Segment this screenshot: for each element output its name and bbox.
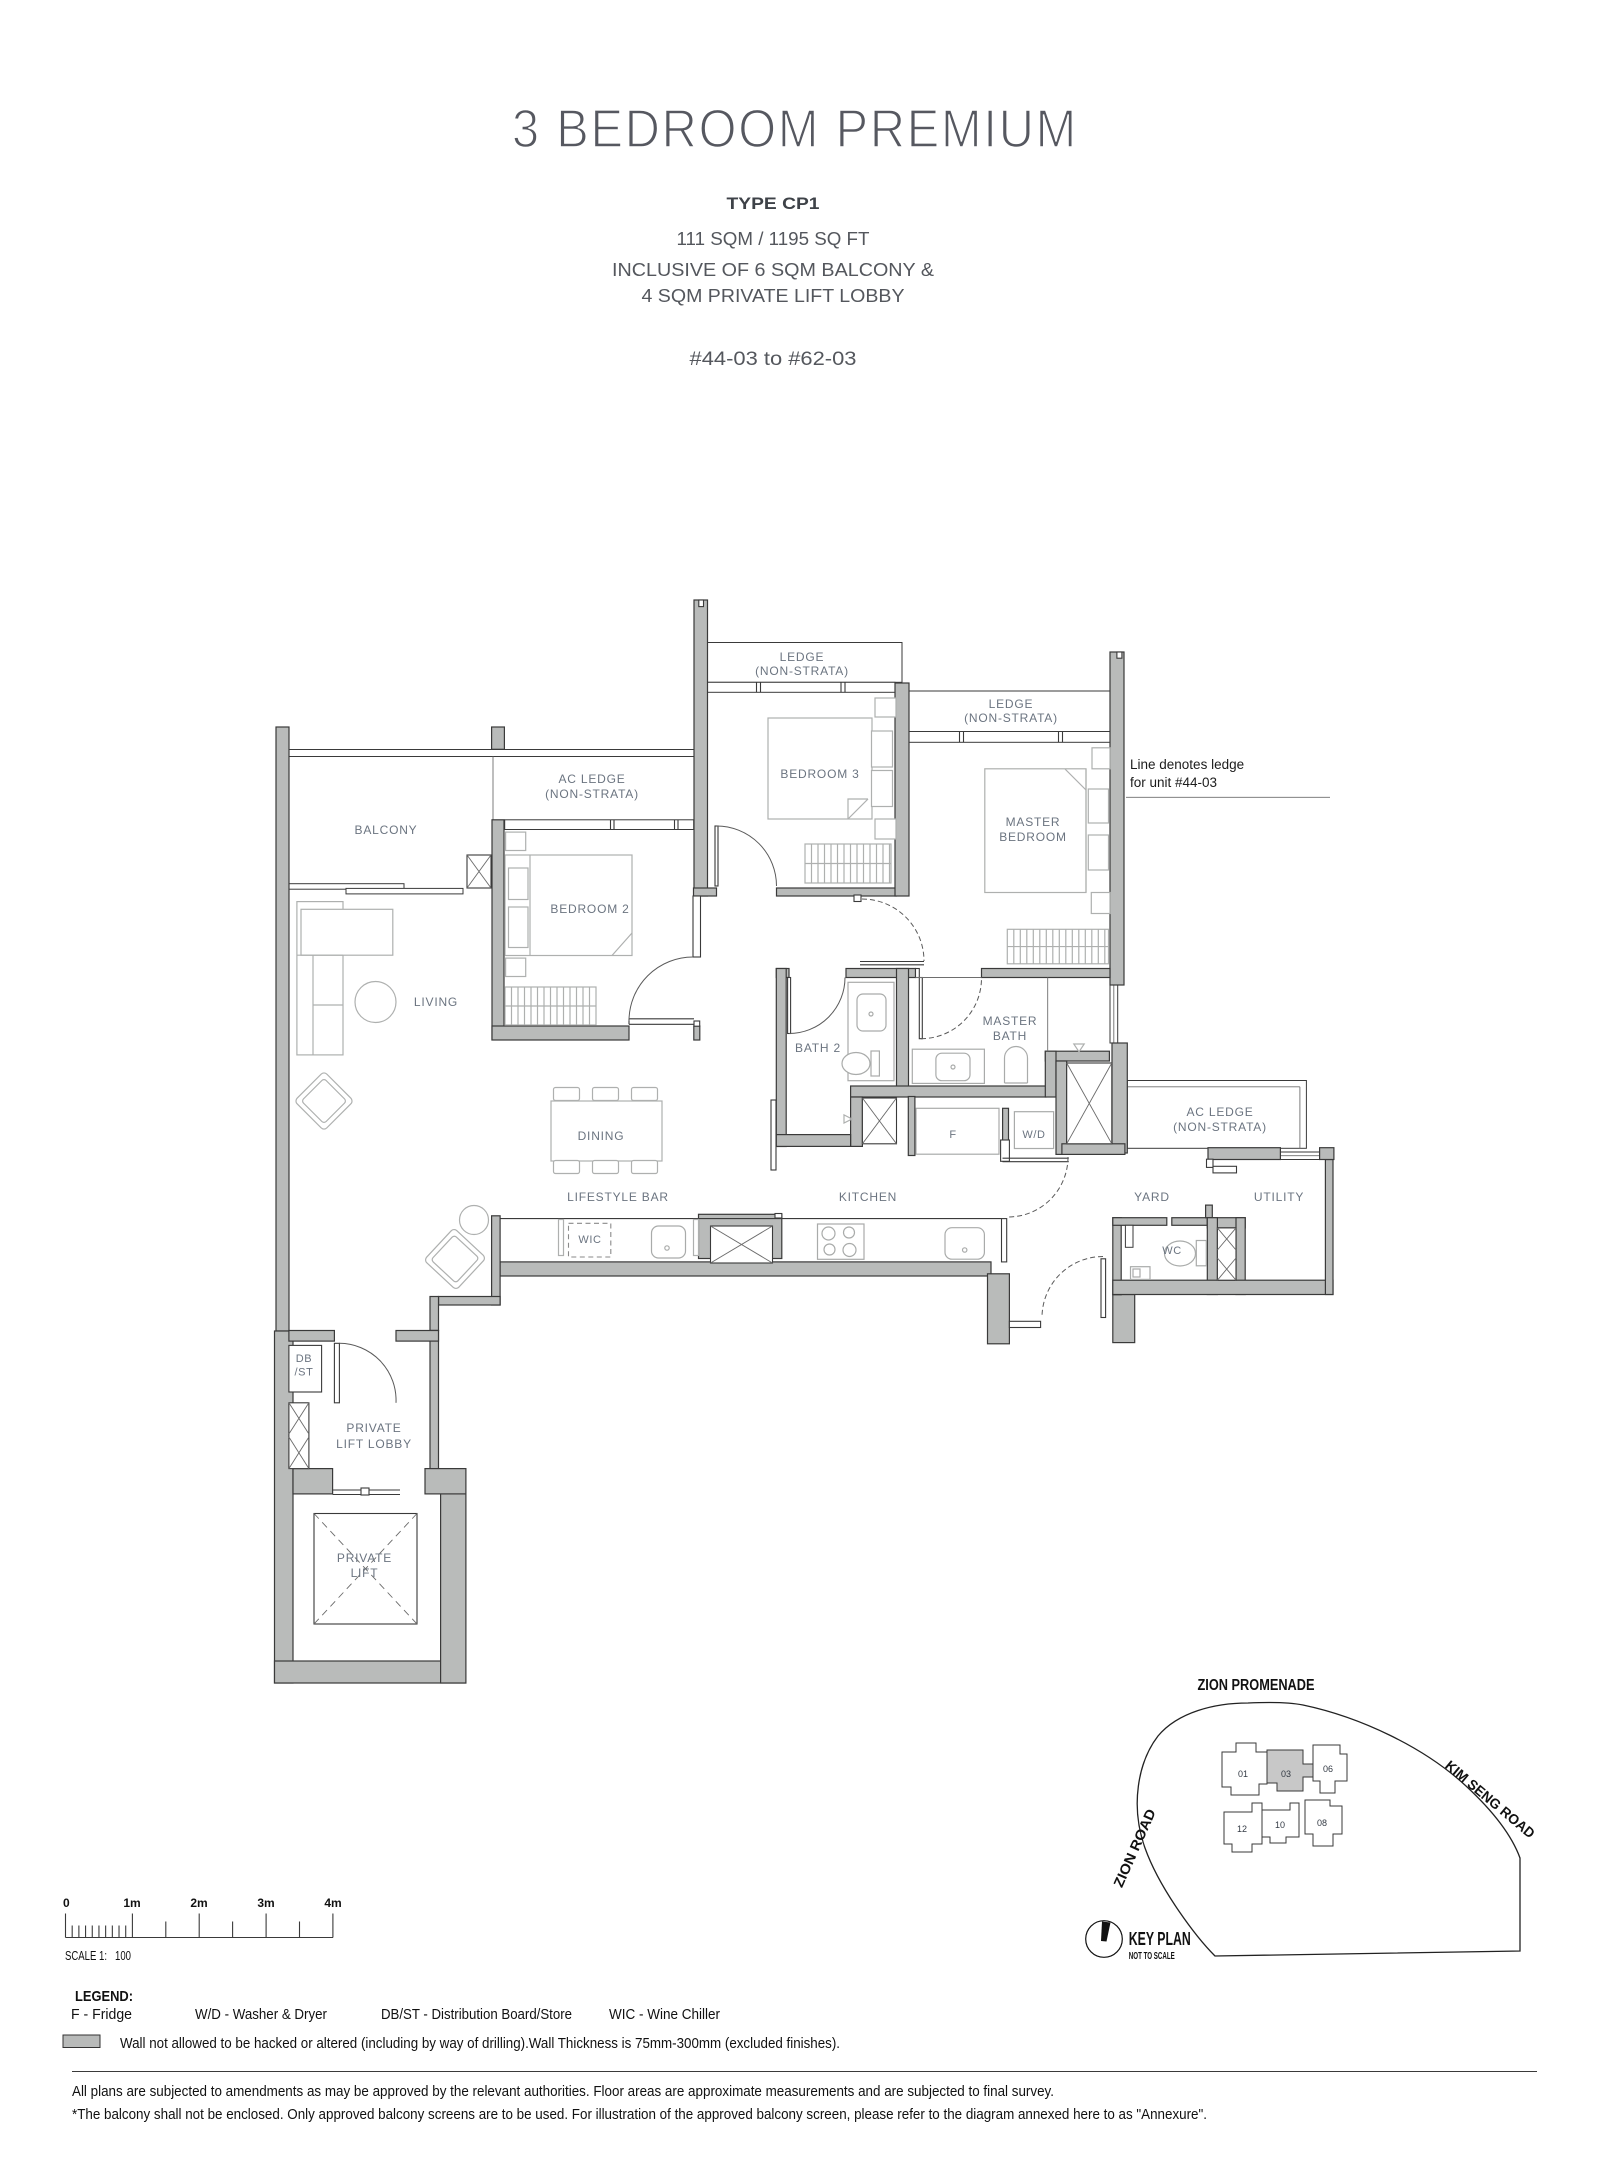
svg-text:111 SQM / 1195 SQ FT: 111 SQM / 1195 SQ FT <box>677 228 870 249</box>
svg-text:AC LEDGE: AC LEDGE <box>1186 1105 1253 1119</box>
svg-text:UTILITY: UTILITY <box>1254 1190 1304 1204</box>
svg-text:TYPE CP1: TYPE CP1 <box>727 194 820 213</box>
svg-text:4 SQM PRIVATE LIFT LOBBY: 4 SQM PRIVATE LIFT LOBBY <box>642 285 905 306</box>
svg-text:NOT TO SCALE: NOT TO SCALE <box>1129 1951 1175 1962</box>
svg-text:W/D - Washer & Dryer: W/D - Washer & Dryer <box>195 2006 327 2023</box>
svg-text:YARD: YARD <box>1134 1190 1170 1204</box>
svg-text:LEDGE: LEDGE <box>989 697 1034 711</box>
svg-text:2m: 2m <box>190 1896 207 1910</box>
svg-text:LIFT LOBBY: LIFT LOBBY <box>336 1437 412 1451</box>
svg-text:BATH 2: BATH 2 <box>795 1041 841 1055</box>
svg-text:for unit #44-03: for unit #44-03 <box>1130 775 1217 790</box>
svg-text:F - Fridge: F - Fridge <box>71 2006 132 2023</box>
svg-text:(NON-STRATA): (NON-STRATA) <box>755 664 849 678</box>
svg-text:DB/ST - Distribution Board/Sto: DB/ST - Distribution Board/Store <box>381 2006 572 2023</box>
svg-text:F: F <box>949 1129 956 1141</box>
svg-text:AC LEDGE: AC LEDGE <box>558 772 625 786</box>
svg-text:WIC - Wine Chiller: WIC - Wine Chiller <box>609 2006 720 2023</box>
svg-text:10: 10 <box>1275 1820 1285 1830</box>
svg-text:01: 01 <box>1238 1769 1248 1779</box>
svg-text:LIFESTYLE BAR: LIFESTYLE BAR <box>567 1190 669 1204</box>
svg-text:ZION PROMENADE: ZION PROMENADE <box>1198 1677 1315 1694</box>
svg-text:INCLUSIVE OF 6 SQM BALCONY &: INCLUSIVE OF 6 SQM BALCONY & <box>612 259 935 280</box>
svg-text:BEDROOM 2: BEDROOM 2 <box>550 902 629 916</box>
svg-text:(NON-STRATA): (NON-STRATA) <box>964 711 1058 725</box>
svg-text:PRIVATE: PRIVATE <box>337 1551 392 1565</box>
svg-text:06: 06 <box>1323 1764 1333 1774</box>
svg-text:LIVING: LIVING <box>414 995 458 1009</box>
svg-text:Line denotes ledge: Line denotes ledge <box>1130 757 1244 772</box>
svg-text:12: 12 <box>1237 1824 1247 1834</box>
svg-text:3 BEDROOM PREMIUM: 3 BEDROOM PREMIUM <box>512 99 1078 159</box>
svg-text:BALCONY: BALCONY <box>355 823 418 837</box>
svg-text:SCALE 1:: SCALE 1: <box>65 1949 107 1963</box>
svg-text:LEDGE: LEDGE <box>780 650 825 664</box>
svg-text:*The balcony shall not be encl: *The balcony shall not be enclosed. Only… <box>72 2107 1207 2123</box>
svg-text:BEDROOM: BEDROOM <box>999 830 1067 844</box>
svg-text:WC: WC <box>1162 1245 1182 1257</box>
svg-text:MASTER: MASTER <box>983 1014 1038 1028</box>
svg-text:1m: 1m <box>123 1896 140 1910</box>
svg-text:/ST: /ST <box>295 1367 314 1379</box>
svg-text:0: 0 <box>63 1896 70 1910</box>
svg-text:Wall not allowed to be hacked: Wall not allowed to be hacked or altered… <box>120 2035 840 2052</box>
svg-text:All plans are subjected to ame: All plans are subjected to amendments as… <box>72 2084 1054 2100</box>
svg-text:#44-03 to #62-03: #44-03 to #62-03 <box>690 349 857 370</box>
svg-text:W/D: W/D <box>1022 1129 1045 1141</box>
svg-text:DB: DB <box>296 1353 312 1365</box>
svg-text:BEDROOM 3: BEDROOM 3 <box>780 767 859 781</box>
svg-text:DINING: DINING <box>578 1129 625 1143</box>
svg-text:(NON-STRATA): (NON-STRATA) <box>1173 1120 1267 1134</box>
svg-text:(NON-STRATA): (NON-STRATA) <box>545 787 639 801</box>
svg-text:BATH: BATH <box>993 1029 1027 1043</box>
svg-text:LIFT: LIFT <box>351 1566 379 1580</box>
svg-text:WIC: WIC <box>578 1234 601 1246</box>
svg-text:PRIVATE: PRIVATE <box>346 1421 401 1435</box>
svg-text:4m: 4m <box>324 1896 341 1910</box>
svg-text:MASTER: MASTER <box>1006 815 1061 829</box>
svg-text:KEY PLAN: KEY PLAN <box>1129 1929 1191 1949</box>
svg-text:LEGEND:: LEGEND: <box>75 1988 133 2005</box>
svg-text:100: 100 <box>115 1949 131 1963</box>
svg-text:KITCHEN: KITCHEN <box>839 1190 897 1204</box>
svg-text:3m: 3m <box>257 1896 274 1910</box>
svg-text:03: 03 <box>1281 1769 1291 1779</box>
svg-text:08: 08 <box>1317 1818 1327 1828</box>
